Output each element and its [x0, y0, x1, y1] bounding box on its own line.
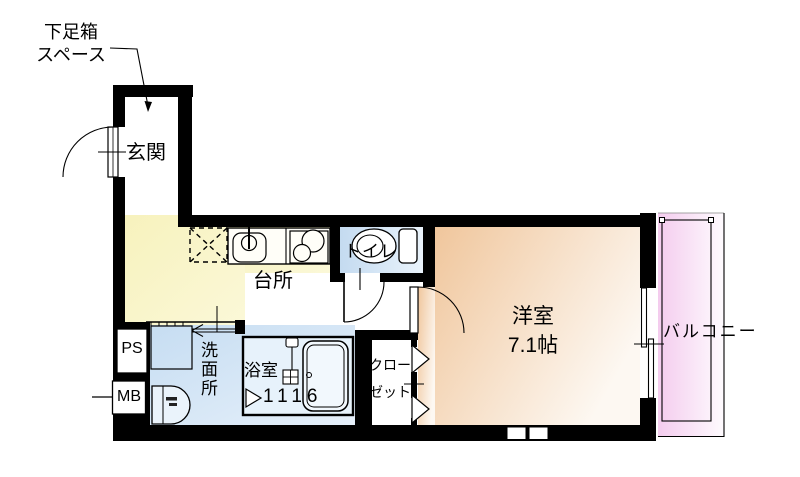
closet-label: クロー ゼット: [368, 352, 412, 406]
toilet-label: トイレ: [344, 237, 398, 262]
meter-box-label: MB: [112, 388, 146, 406]
stove-burner-small: [294, 245, 311, 262]
toilet-tank: [399, 229, 417, 263]
vanity-faucet-icon: [166, 397, 177, 401]
shower-head-icon: [286, 338, 298, 347]
entrance-label: 玄関: [126, 136, 166, 165]
pipe-space-label: PS: [117, 340, 147, 358]
kitchen-label: 台所: [253, 264, 293, 293]
toilet-door: [344, 268, 384, 322]
vanity-sink: [152, 386, 190, 424]
bathroom-label: 浴室: [244, 356, 278, 381]
floor-plan: 下足箱 スペース 玄関 台所 トイレ 洋室 7.1帖 バルコニー 洗面所 浴室 …: [0, 0, 800, 477]
entrance-door: [63, 127, 126, 177]
balcony-label: バルコニー: [663, 317, 758, 342]
western-room-label: 洋室 7.1帖: [478, 302, 588, 360]
shoe-box-space-label: 下足箱 スペース: [24, 21, 118, 67]
toilet-door-arc: [344, 282, 384, 322]
washroom-label: 洗面所: [195, 341, 220, 427]
bathroom-size-label: 1116: [263, 386, 322, 408]
